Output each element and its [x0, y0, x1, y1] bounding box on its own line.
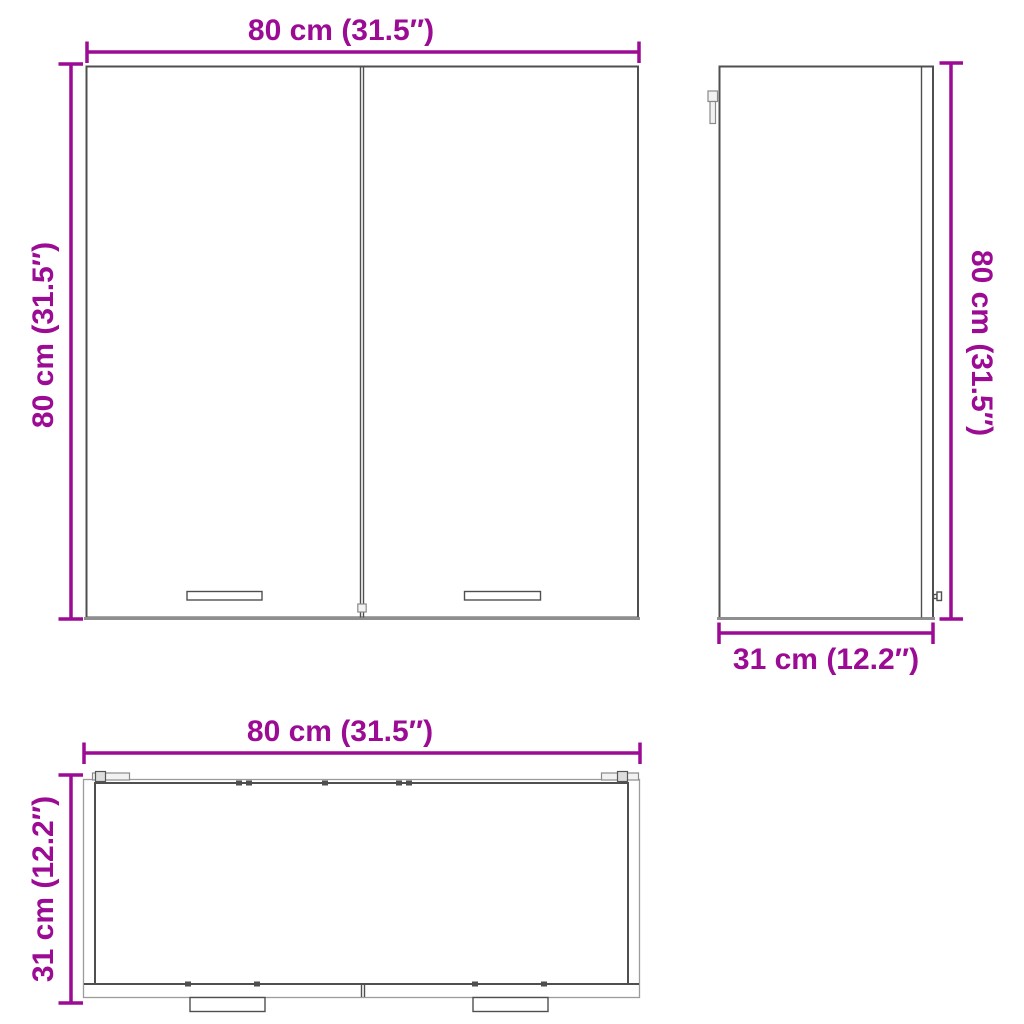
top-right-hinge — [602, 772, 639, 782]
front-width-dimension: 80 cm (31.5″) — [87, 14, 639, 63]
front-width-label: 80 cm (31.5″) — [248, 14, 434, 47]
front-height-dimension: 80 cm (31.5″) — [27, 64, 83, 619]
knob-cap — [937, 592, 942, 601]
front-left-door-handle — [187, 592, 262, 601]
top-left-door-handle — [190, 998, 265, 1012]
top-width-dimension: 80 cm (31.5″) — [84, 715, 640, 764]
front-height-label: 80 cm (31.5″) — [27, 242, 60, 428]
top-left-hinge — [93, 772, 130, 782]
bracket-arm — [710, 102, 716, 124]
cabinet-dimension-diagram: 80 cm (31.5″) 80 cm (31.5″) 80 cm (31.5″… — [0, 0, 1024, 1024]
top-outer-outline — [84, 780, 640, 998]
front-door-catch — [358, 604, 366, 612]
top-width-label: 80 cm (31.5″) — [247, 715, 433, 748]
side-depth-label: 31 cm (12.2″) — [733, 643, 919, 676]
side-depth-dimension: 31 cm (12.2″) — [719, 623, 933, 677]
front-view — [84, 67, 640, 619]
side-height-label: 80 cm (31.5″) — [965, 250, 998, 436]
top-depth-dimension: 31 cm (12.2″) — [27, 775, 83, 1003]
side-handle-knob — [934, 592, 942, 601]
hinge-cup — [618, 772, 628, 782]
front-cabinet-outline — [87, 67, 639, 618]
front-right-door-handle — [465, 592, 541, 601]
side-view — [708, 67, 942, 619]
diagram-canvas: 80 cm (31.5″) 80 cm (31.5″) 80 cm (31.5″… — [0, 0, 1024, 1024]
bracket-hook — [708, 91, 718, 102]
side-cabinet-outline — [720, 67, 934, 619]
top-right-door-handle — [473, 998, 548, 1012]
top-depth-label: 31 cm (12.2″) — [27, 796, 60, 982]
wall-mount-bracket — [708, 91, 718, 124]
top-view — [84, 772, 640, 1012]
side-height-dimension: 80 cm (31.5″) — [940, 63, 999, 619]
hinge-cup — [96, 772, 106, 782]
